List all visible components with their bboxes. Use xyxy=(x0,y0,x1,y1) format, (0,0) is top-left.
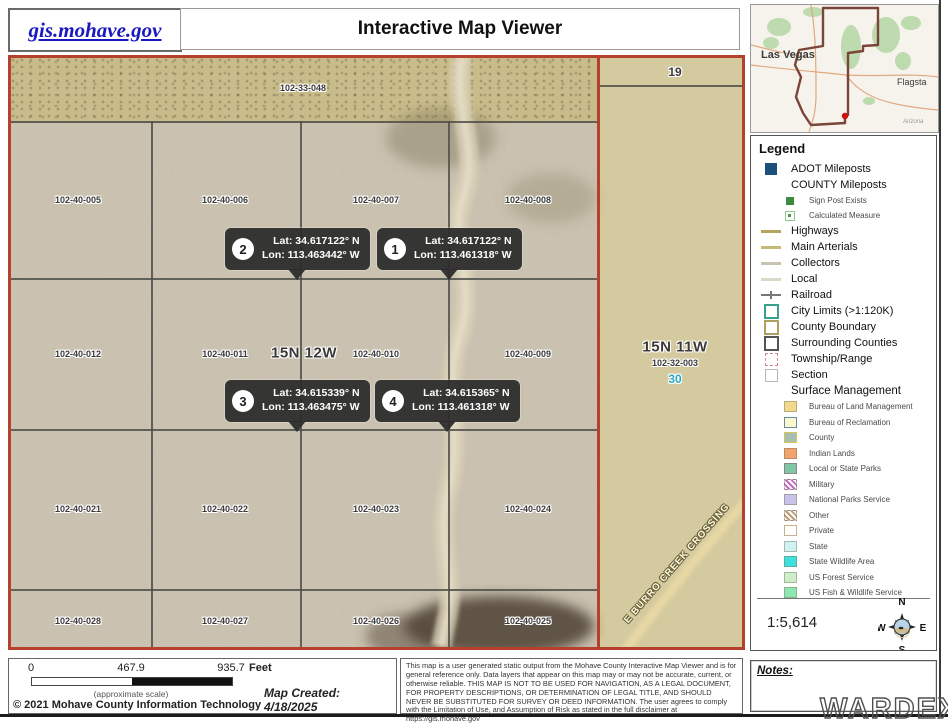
overview-map: Las Vegas Flagsta Arizona xyxy=(750,4,939,133)
legend-item: Township/Range xyxy=(759,351,936,367)
section-line xyxy=(11,121,597,123)
legend-item: State xyxy=(759,539,936,555)
gis-mohave-gov-link[interactable]: gis.mohave.gov xyxy=(29,18,162,43)
usfws-swatch xyxy=(784,587,797,598)
township-label-east: 15N 11W xyxy=(642,339,707,356)
svg-text:S: S xyxy=(899,645,906,651)
callout-number: 1 xyxy=(384,238,406,260)
callout-number: 4 xyxy=(382,390,404,412)
legend-item: Military xyxy=(759,477,936,493)
city-limits-swatch xyxy=(764,304,779,319)
title-box: Interactive Map Viewer xyxy=(180,8,740,50)
parcel-label: 102-40-025 xyxy=(505,616,551,626)
map-sheet: gis.mohave.gov Interactive Map Viewer xyxy=(0,0,948,728)
main-arterials-swatch xyxy=(761,246,781,249)
legend-item: Collectors xyxy=(759,255,936,271)
callout-lat: Lat: 34.615339° N xyxy=(273,387,360,399)
parcel-label: 102-40-005 xyxy=(55,195,101,205)
legend-item: COUNTY Mileposts xyxy=(759,177,936,193)
scalebar-note: (approximate scale) xyxy=(94,689,169,699)
legend-item: National Parks Service xyxy=(759,492,936,508)
county-surface-swatch xyxy=(784,432,797,443)
parcel-label: 102-40-026 xyxy=(353,616,399,626)
parcel-line-v1 xyxy=(151,121,153,647)
parcel-label: 102-40-012 xyxy=(55,349,101,359)
legend-item: Railroad xyxy=(759,287,936,303)
legend-item: Private xyxy=(759,523,936,539)
parcel-label: 102-40-024 xyxy=(505,504,551,514)
legend-item: Surrounding Counties xyxy=(759,335,936,351)
callout-lon: Lon: 113.463475° W xyxy=(262,401,360,413)
overview-map-graphic xyxy=(751,5,938,132)
calculated-measure-swatch xyxy=(785,211,795,221)
railroad-swatch xyxy=(761,294,781,296)
township-range-swatch xyxy=(765,353,778,366)
state-wildlife-swatch xyxy=(784,556,797,567)
legend-item: Local or State Parks xyxy=(759,461,936,477)
adot-milepost-swatch xyxy=(765,163,777,175)
callout-number: 3 xyxy=(232,390,254,412)
coordinate-callout-4: 4 Lat: 34.615365° N Lon: 113.461318° W xyxy=(375,380,520,422)
legend-item: Bureau of Land Management xyxy=(759,399,936,415)
legend-item: County Boundary xyxy=(759,319,936,335)
overview-city2-label: Flagsta xyxy=(897,77,927,87)
scalebar-tick-mid: 467.9 xyxy=(117,662,145,674)
legend-item: US Forest Service xyxy=(759,570,936,586)
copyright: © 2021 Mohave County Information Technol… xyxy=(13,699,261,711)
scalebar-panel: 0 467.9 935.7 Feet (approximate scale) M… xyxy=(8,658,397,714)
legend-item: Bureau of Reclamation xyxy=(759,415,936,431)
legend-item: Other xyxy=(759,508,936,524)
legend-title: Legend xyxy=(759,141,936,161)
svg-text:N: N xyxy=(898,597,905,608)
compass-rose-icon: N S W E xyxy=(878,596,926,651)
usfs-swatch xyxy=(784,572,797,583)
wardex-watermark: WARDEX xyxy=(820,693,948,726)
overview-attribution: Arizona xyxy=(903,119,923,125)
legend-item: Calculated Measure xyxy=(759,208,936,223)
section-swatch xyxy=(765,369,778,382)
parcel-label: 102-40-010 xyxy=(353,349,399,359)
parcel-line-h4 xyxy=(11,589,597,591)
disclaimer-panel: This map is a user generated static outp… xyxy=(400,658,743,714)
legend-item: Local xyxy=(759,271,936,287)
legend-item: Section xyxy=(759,367,936,383)
blm-swatch xyxy=(784,401,797,412)
parcel-label: 102-40-021 xyxy=(55,504,101,514)
burro-creek-crossing-road xyxy=(623,496,742,647)
legend-item: County xyxy=(759,430,936,446)
indian-lands-swatch xyxy=(784,448,797,459)
map-created-date: Map Created: 4/18/2025 xyxy=(264,686,396,714)
bottom-border-rule xyxy=(0,714,948,717)
map-canvas: 102-33-048 19 102-40-005 102-40-006 102-… xyxy=(8,55,745,650)
section-number-30: 30 xyxy=(668,372,681,386)
scalebar-unit: Feet xyxy=(249,662,272,674)
other-swatch xyxy=(784,510,797,521)
parcel-label: 102-40-006 xyxy=(202,195,248,205)
parcel-label: 102-40-008 xyxy=(505,195,551,205)
callout-lon: Lon: 113.463442° W xyxy=(262,249,360,261)
coordinate-callout-2: 2 Lat: 34.617122° N Lon: 113.463442° W xyxy=(225,228,370,270)
callout-lon: Lon: 113.461318° W xyxy=(412,401,510,413)
local-roads-swatch xyxy=(761,278,781,281)
legend-item: State Wildlife Area xyxy=(759,554,936,570)
collectors-swatch xyxy=(761,262,781,265)
parcel-label: 102-32-003 xyxy=(652,358,698,368)
parcel-label: 102-40-028 xyxy=(55,616,101,626)
callout-lat: Lat: 34.617122° N xyxy=(425,235,512,247)
callout-lon: Lon: 113.461318° W xyxy=(414,249,512,261)
legend-panel: Legend ADOT Mileposts COUNTY Mileposts S… xyxy=(750,135,937,651)
coordinate-callout-1: 1 Lat: 34.617122° N Lon: 113.461318° W xyxy=(377,228,522,270)
scalebar-bar xyxy=(31,677,233,686)
legend-item: Indian Lands xyxy=(759,446,936,462)
legend-item: Highways xyxy=(759,223,936,239)
legend-item: Main Arterials xyxy=(759,239,936,255)
overview-city-label: Las Vegas xyxy=(761,49,815,61)
legend-item: Surface Management xyxy=(759,383,936,399)
highways-swatch xyxy=(761,230,781,233)
callout-number: 2 xyxy=(232,238,254,260)
callout-lat: Lat: 34.615365° N xyxy=(423,387,510,399)
sign-post-swatch xyxy=(786,197,794,205)
dark-vegetation-patches xyxy=(366,108,596,647)
reclamation-swatch xyxy=(784,417,797,428)
parcel-label: 102-33-048 xyxy=(280,83,326,93)
callout-lat: Lat: 34.617122° N xyxy=(273,235,360,247)
svg-text:E: E xyxy=(920,623,926,634)
scale-ratio: 1:5,614 xyxy=(767,614,817,631)
parcel-label: 102-40-011 xyxy=(202,349,248,359)
scalebar-bar-filled xyxy=(132,678,232,685)
parcel-label: 102-40-009 xyxy=(505,349,551,359)
state-swatch xyxy=(784,541,797,552)
state-parks-swatch xyxy=(784,463,797,474)
page-title: Interactive Map Viewer xyxy=(358,18,563,40)
surrounding-counties-swatch xyxy=(764,336,779,351)
notes-label: Notes: xyxy=(751,661,936,681)
legend-item: ADOT Mileposts xyxy=(759,161,936,177)
parcel-label: 102-40-027 xyxy=(202,616,248,626)
parcel-label: 102-40-022 xyxy=(202,504,248,514)
parcel-label: 102-40-023 xyxy=(353,504,399,514)
scalebar-tick-0: 0 xyxy=(28,662,34,674)
legend-item: Sign Post Exists xyxy=(759,193,936,208)
nps-swatch xyxy=(784,494,797,505)
township-boundary-line xyxy=(597,58,600,647)
location-dot xyxy=(842,113,848,119)
parcel-label: 102-40-007 xyxy=(353,195,399,205)
logo-box: gis.mohave.gov xyxy=(8,8,182,52)
section-number-19: 19 xyxy=(668,65,681,79)
coordinate-callout-3: 3 Lat: 34.615339° N Lon: 113.463475° W xyxy=(225,380,370,422)
private-swatch xyxy=(784,525,797,536)
county-boundary-swatch xyxy=(764,320,779,335)
scalebar-tick-max: 935.7 xyxy=(217,662,245,674)
legend-item: City Limits (>1:120K) xyxy=(759,303,936,319)
military-swatch xyxy=(784,479,797,490)
township-label-west: 15N 12W xyxy=(271,345,337,362)
right-border-rule xyxy=(939,0,941,717)
svg-text:W: W xyxy=(878,623,886,634)
section-line-east xyxy=(600,85,742,87)
